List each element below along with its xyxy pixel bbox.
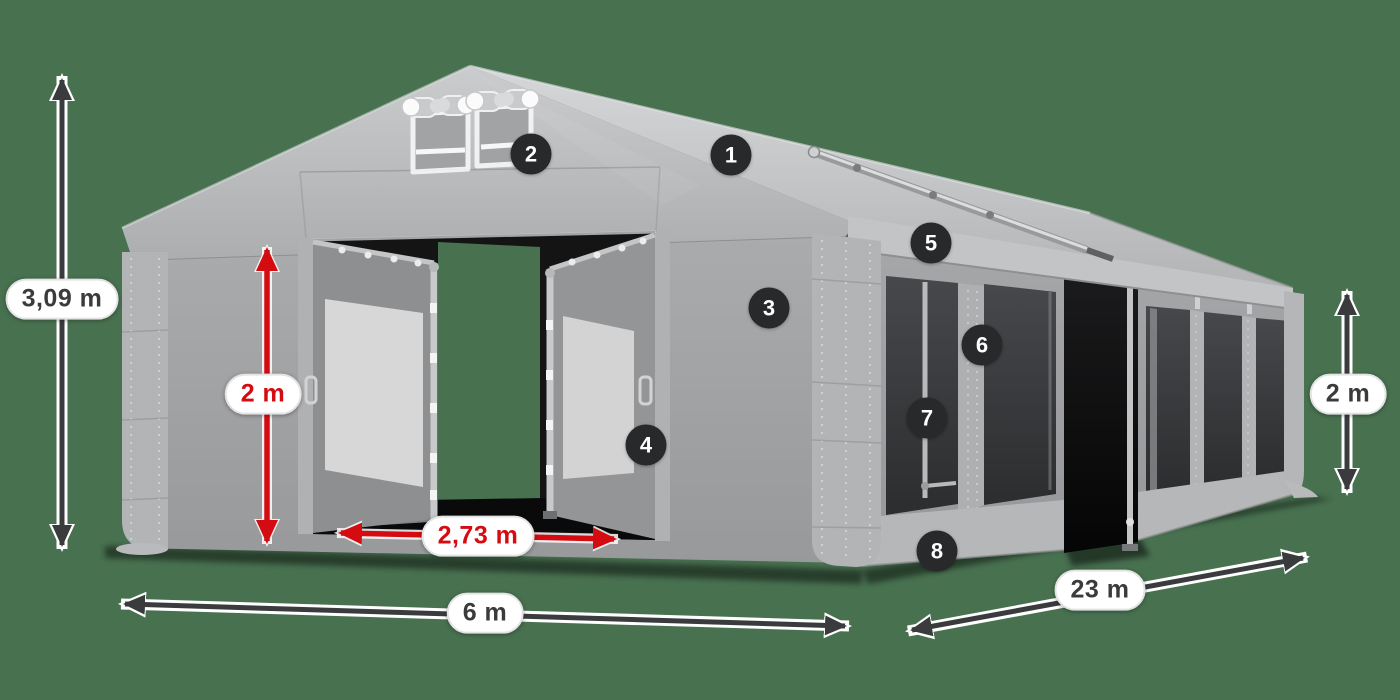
tent-illustration [0, 0, 1400, 700]
dimension-label-side-height: 2 m [1310, 374, 1387, 415]
callout-badge-2: 2 [511, 134, 552, 175]
roof-vent-left-icon [402, 96, 475, 172]
callout-badge-7: 7 [907, 398, 948, 439]
callout-badge-1: 1 [711, 135, 752, 176]
side-window-4 [1204, 312, 1242, 488]
dimension-label-length: 23 m [1055, 570, 1146, 611]
callout-badge-3: 3 [749, 288, 790, 329]
dimension-label-total-height: 3,09 m [6, 279, 119, 320]
entrance-opening [306, 231, 656, 540]
door-leaf-right [543, 235, 655, 539]
callout-badge-6: 6 [962, 325, 1003, 366]
dimension-label-entrance-height: 2 m [225, 374, 302, 415]
side-window-2 [984, 284, 1056, 505]
side-entrance-gap [1064, 256, 1138, 553]
callout-badge-4: 4 [626, 425, 667, 466]
dimension-label-entrance-width: 2,73 m [422, 516, 535, 557]
see-through-gap [438, 242, 540, 514]
rear-corner-column [1284, 291, 1304, 494]
side-window-1 [886, 276, 958, 515]
callout-badge-8: 8 [917, 531, 958, 572]
tent-dimension-diagram: 3,09 m 2 m 2,73 m 6 m 23 m 2 m 1 2 3 4 5… [0, 0, 1400, 700]
door-leaf-left [313, 242, 439, 533]
front-left-corner-column [122, 252, 168, 549]
callout-badge-5: 5 [911, 223, 952, 264]
dimension-label-width: 6 m [447, 593, 524, 634]
